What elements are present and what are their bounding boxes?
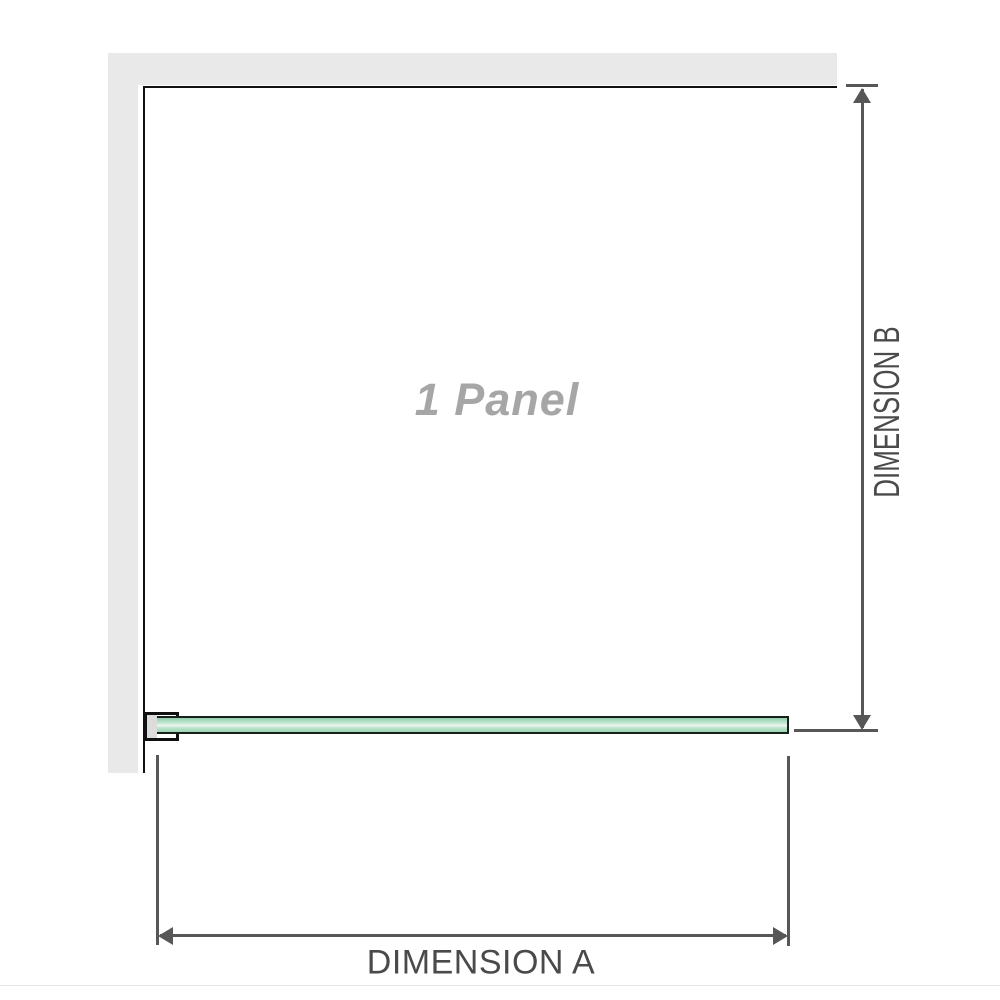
arrow-right-icon [773, 927, 788, 945]
wall-top-strip [108, 53, 837, 85]
dimension-b-line [861, 89, 864, 728]
dimension-a-line [160, 934, 786, 937]
dimension-a-right-extension [787, 756, 790, 946]
panel-outline-left [143, 86, 145, 773]
panel-outline-top [143, 86, 837, 88]
dimension-a-left-extension [156, 755, 159, 945]
dimension-b-top-tick [846, 84, 878, 87]
panel-count-label: 1 Panel [415, 374, 580, 426]
bracket-pad [147, 715, 157, 738]
dimension-a-label: DIMENSION A [367, 944, 595, 983]
page-bottom-rule [0, 985, 1000, 986]
dimension-b-label: DIMENSION B [866, 326, 908, 497]
arrow-up-icon [853, 88, 871, 103]
arrow-left-icon [158, 927, 173, 945]
wall-left-strip [108, 53, 138, 773]
arrow-down-icon [853, 715, 871, 730]
glass-panel [157, 716, 789, 734]
panel-dimension-diagram: 1 Panel DIMENSION B DIMENSION A [0, 0, 1000, 1000]
